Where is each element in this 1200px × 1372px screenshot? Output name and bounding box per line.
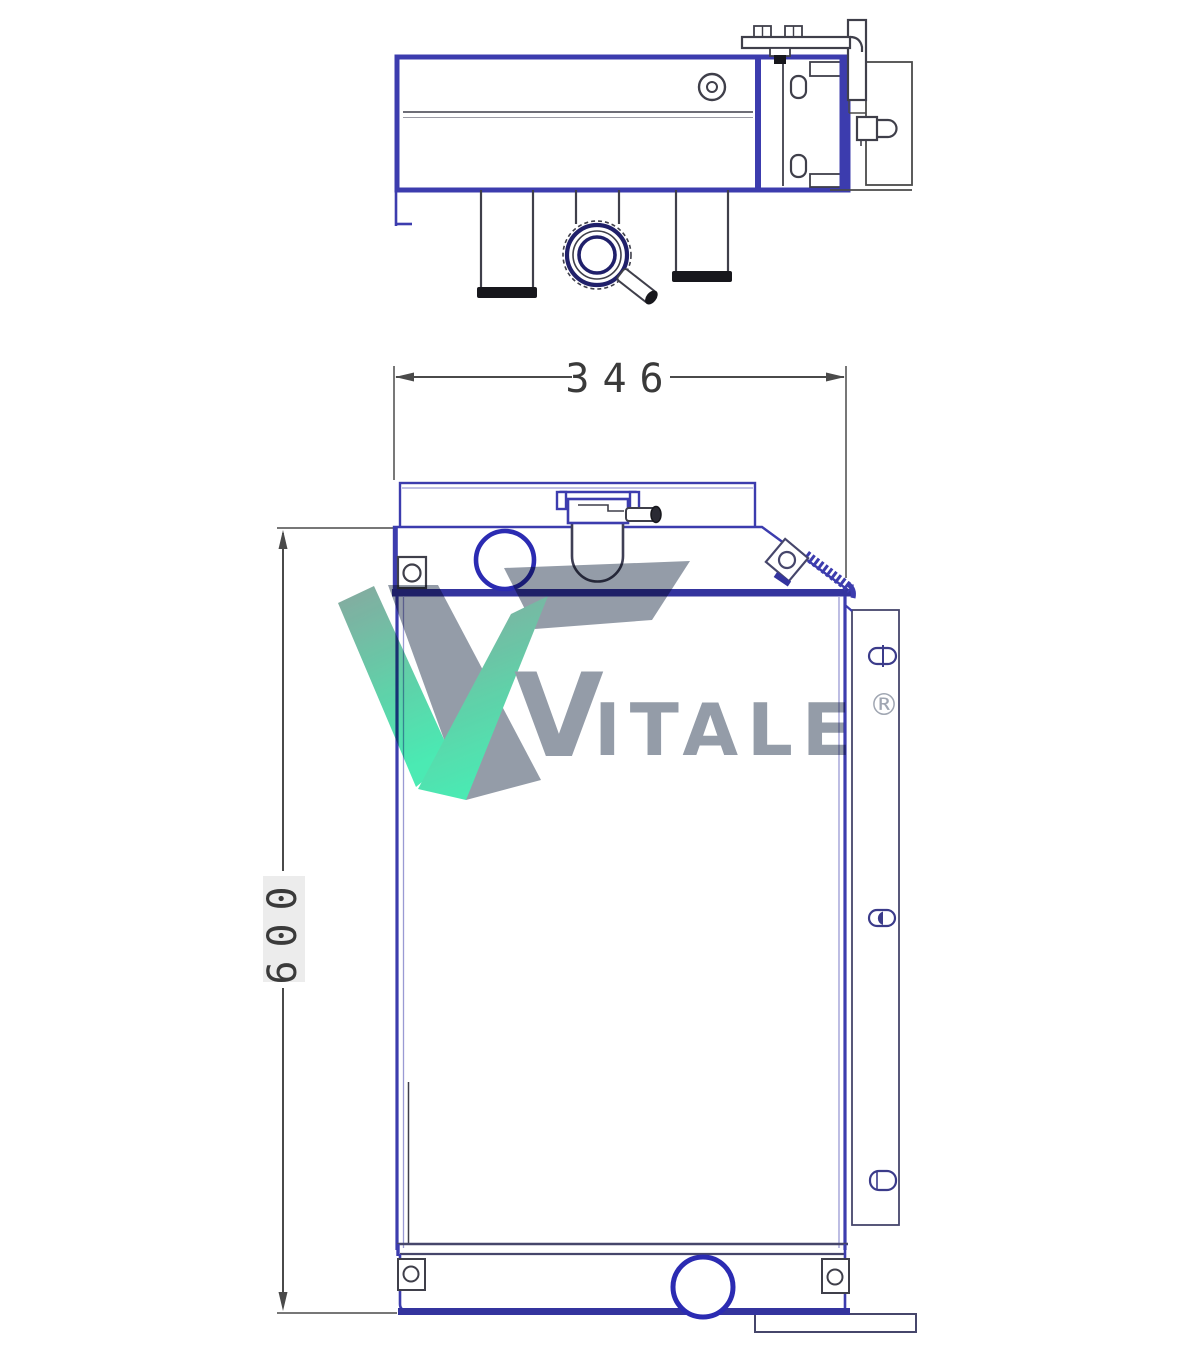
vitale-watermark: V ITALE ® [0, 0, 1200, 1372]
radiator-technical-drawing: 346 600 [0, 0, 1200, 1372]
logo-letter-v: V [514, 649, 604, 784]
logo-letters-itale: ITALE [594, 688, 860, 772]
logo-wordmark: V ITALE ® [514, 649, 899, 784]
registered-trademark-symbol: ® [869, 688, 899, 723]
